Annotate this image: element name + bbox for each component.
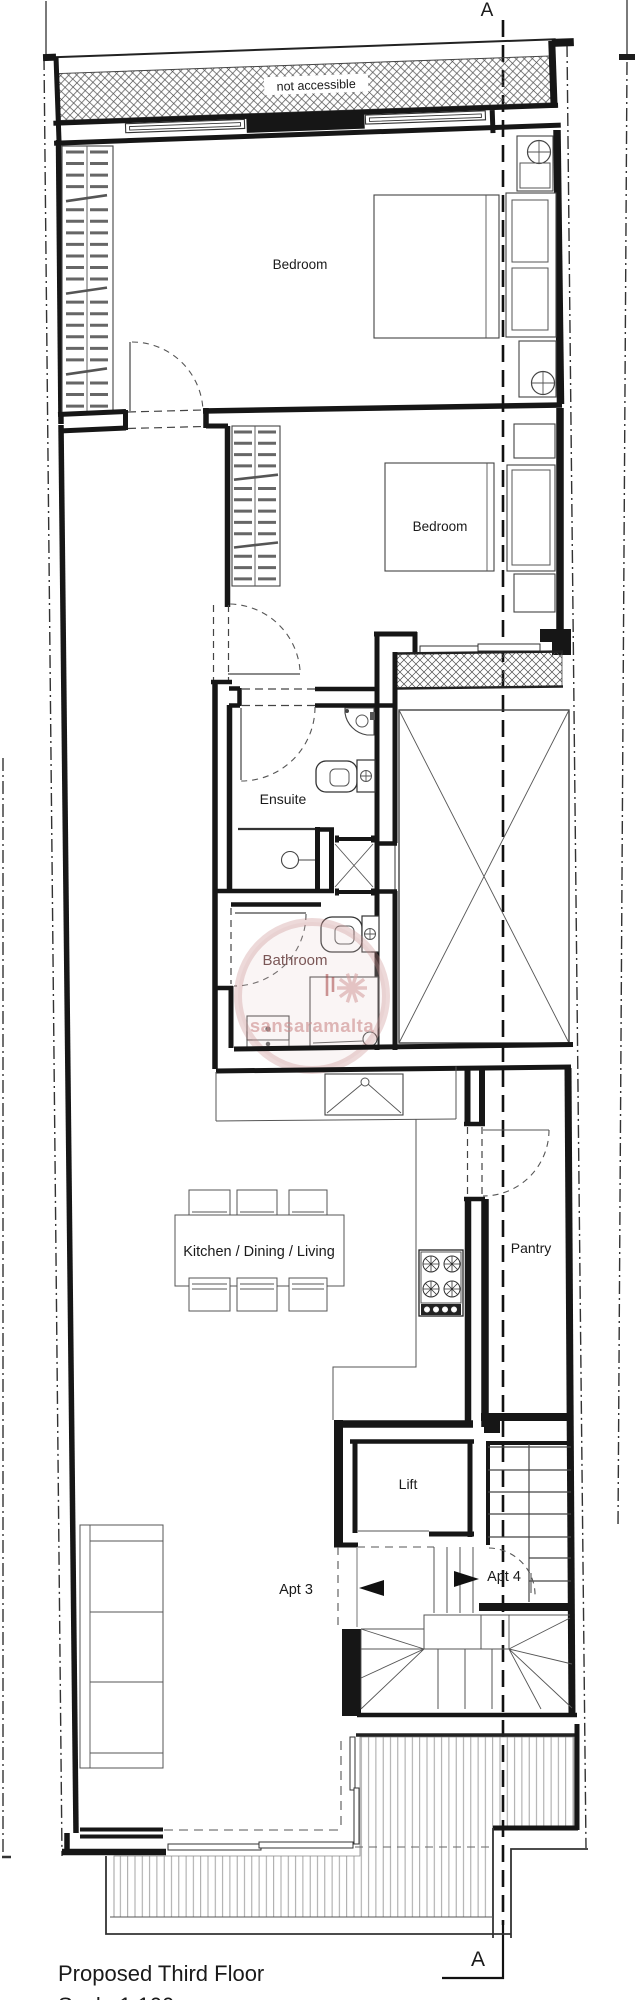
svg-text:Apt 4: Apt 4 [487, 1569, 521, 1585]
svg-text:Ensuite: Ensuite [260, 791, 307, 807]
svg-text:A: A [481, 0, 494, 21]
svg-text:A: A [471, 1948, 485, 1971]
svg-text:Apt 3: Apt 3 [279, 1582, 313, 1598]
svg-text:not accessible: not accessible [276, 77, 356, 94]
svg-text:Bedroom: Bedroom [273, 257, 328, 272]
svg-text:Lift: Lift [399, 1476, 418, 1492]
svg-text:Kitchen / Dining / Living: Kitchen / Dining / Living [183, 1244, 335, 1260]
svg-text:Proposed Third Floor: Proposed Third Floor [58, 1961, 264, 1986]
svg-text:Scale 1:100: Scale 1:100 [58, 1993, 174, 2000]
svg-text:Bedroom: Bedroom [413, 519, 468, 534]
svg-text:sansaramalta: sansaramalta [250, 1015, 374, 1036]
svg-text:Pantry: Pantry [511, 1240, 551, 1256]
